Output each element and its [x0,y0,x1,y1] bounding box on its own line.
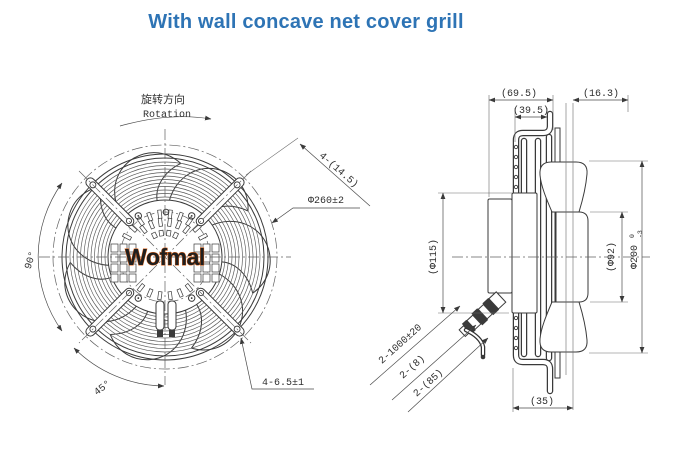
impeller-tol-upper: 0 [629,234,636,238]
dim-angle-left: 90° [23,250,40,271]
dim-cable-dia: 2-(8) [397,353,427,382]
dim-outer-diameter: Φ260±2 [308,196,344,207]
dim-mount-hole: 4-6.5±1 [262,378,304,389]
angle-45-arc [74,348,164,386]
dim-net-depth: (39.5) [513,105,549,117]
dim-foot-width: (35) [530,396,554,408]
impeller-tol-lower: -3 [637,230,644,238]
rotation-label-en: Rotation [143,109,191,121]
motor-housing-rear [488,199,512,293]
side-view: (69.5) (39.5) (16.3) (Φ115) (Φ92) Φ200 0… [370,88,650,412]
dim-front-depth: (16.3) [583,88,619,100]
dim-spoke-hole: 4-(14.5) [316,150,360,191]
spoke-axis-extension [246,138,298,175]
dim-total-depth: (69.5) [501,88,537,100]
cable-gland [457,291,507,339]
outer-dia-leader [272,208,360,223]
dim-motor-diameter: (Φ115) [428,239,440,275]
drawing-page: With wall concave net cover grill Wofmal… [0,0,686,455]
cable-tip [481,355,486,360]
technical-drawing: Wofmal 旋转方向 Rotation 4-(14.5) Φ260±2 90°… [0,0,686,455]
watermark: Wofmal [125,244,205,270]
rotation-label-cn: 旋转方向 [141,92,185,106]
dim-angle-bottom: 45° [92,378,114,399]
motor-housing-front [512,193,537,313]
